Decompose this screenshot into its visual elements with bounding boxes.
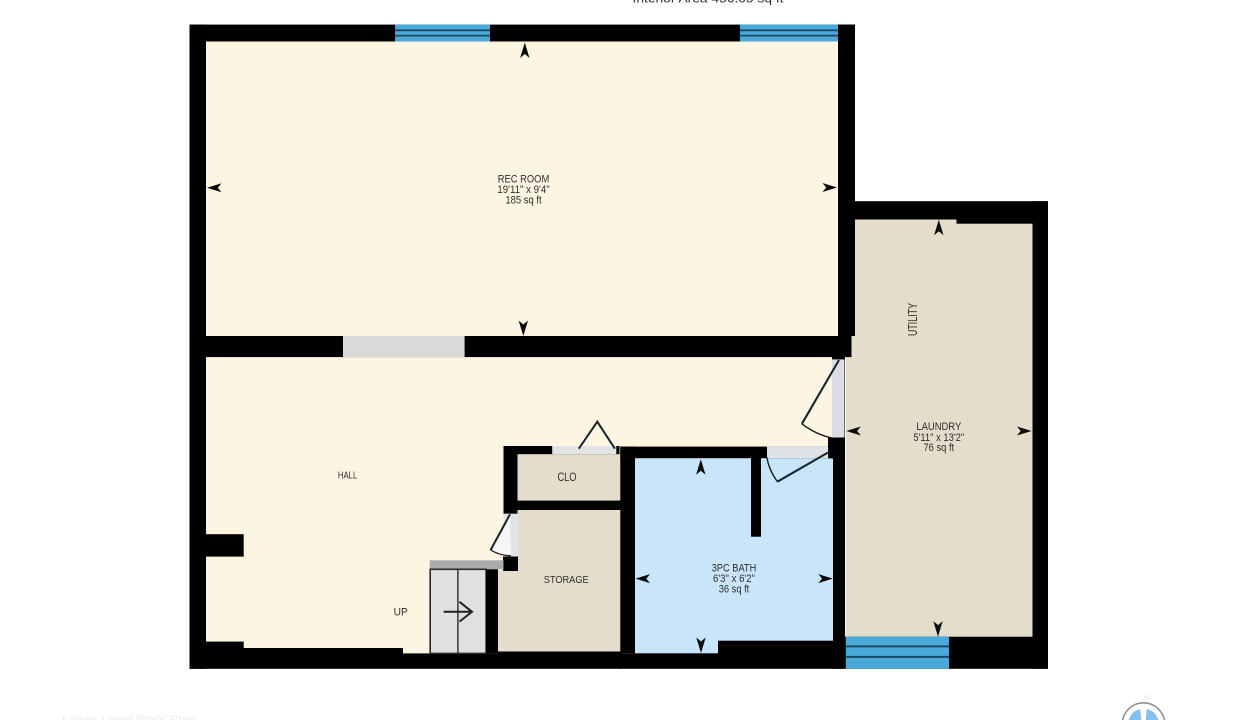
svg-text:CLO: CLO bbox=[557, 470, 576, 484]
svg-text:UTILITY: UTILITY bbox=[905, 303, 920, 336]
svg-text:N: N bbox=[1144, 694, 1150, 703]
svg-text:Lower Level Floor Plan: Lower Level Floor Plan bbox=[62, 714, 196, 720]
svg-text:HALL: HALL bbox=[338, 470, 358, 482]
svg-text:76 sq ft: 76 sq ft bbox=[923, 442, 954, 454]
svg-text:UP: UP bbox=[394, 606, 408, 618]
svg-text:185 sq ft: 185 sq ft bbox=[505, 194, 541, 206]
svg-text:Interior Area 456.05 sq ft: Interior Area 456.05 sq ft bbox=[633, 0, 784, 5]
svg-text:36 sq ft: 36 sq ft bbox=[719, 583, 750, 595]
svg-text:STORAGE: STORAGE bbox=[544, 574, 589, 586]
